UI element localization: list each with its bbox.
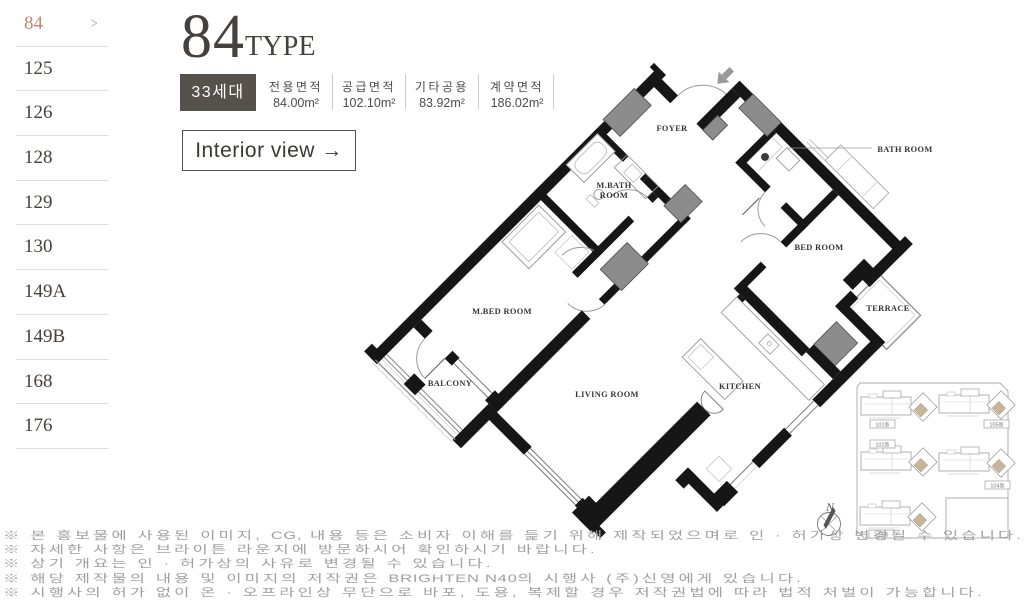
svg-text:105동: 105동: [989, 421, 1003, 428]
svg-text:104동: 104동: [990, 482, 1004, 489]
svg-text:M.BED ROOM: M.BED ROOM: [472, 307, 532, 316]
svg-text:BALCONY: BALCONY: [428, 379, 472, 388]
svg-text:FOYER: FOYER: [656, 124, 688, 133]
svg-text:TERRACE: TERRACE: [866, 304, 909, 313]
svg-text:BATH ROOM: BATH ROOM: [877, 145, 932, 154]
svg-text:101동: 101동: [875, 421, 889, 428]
svg-text:LIVING ROOM: LIVING ROOM: [575, 390, 639, 399]
svg-text:102동: 102동: [875, 441, 889, 448]
svg-text:ROOM: ROOM: [600, 191, 628, 200]
svg-text:KITCHEN: KITCHEN: [719, 382, 761, 391]
svg-text:BED ROOM: BED ROOM: [794, 243, 843, 252]
svg-text:M.BATH: M.BATH: [596, 181, 631, 190]
